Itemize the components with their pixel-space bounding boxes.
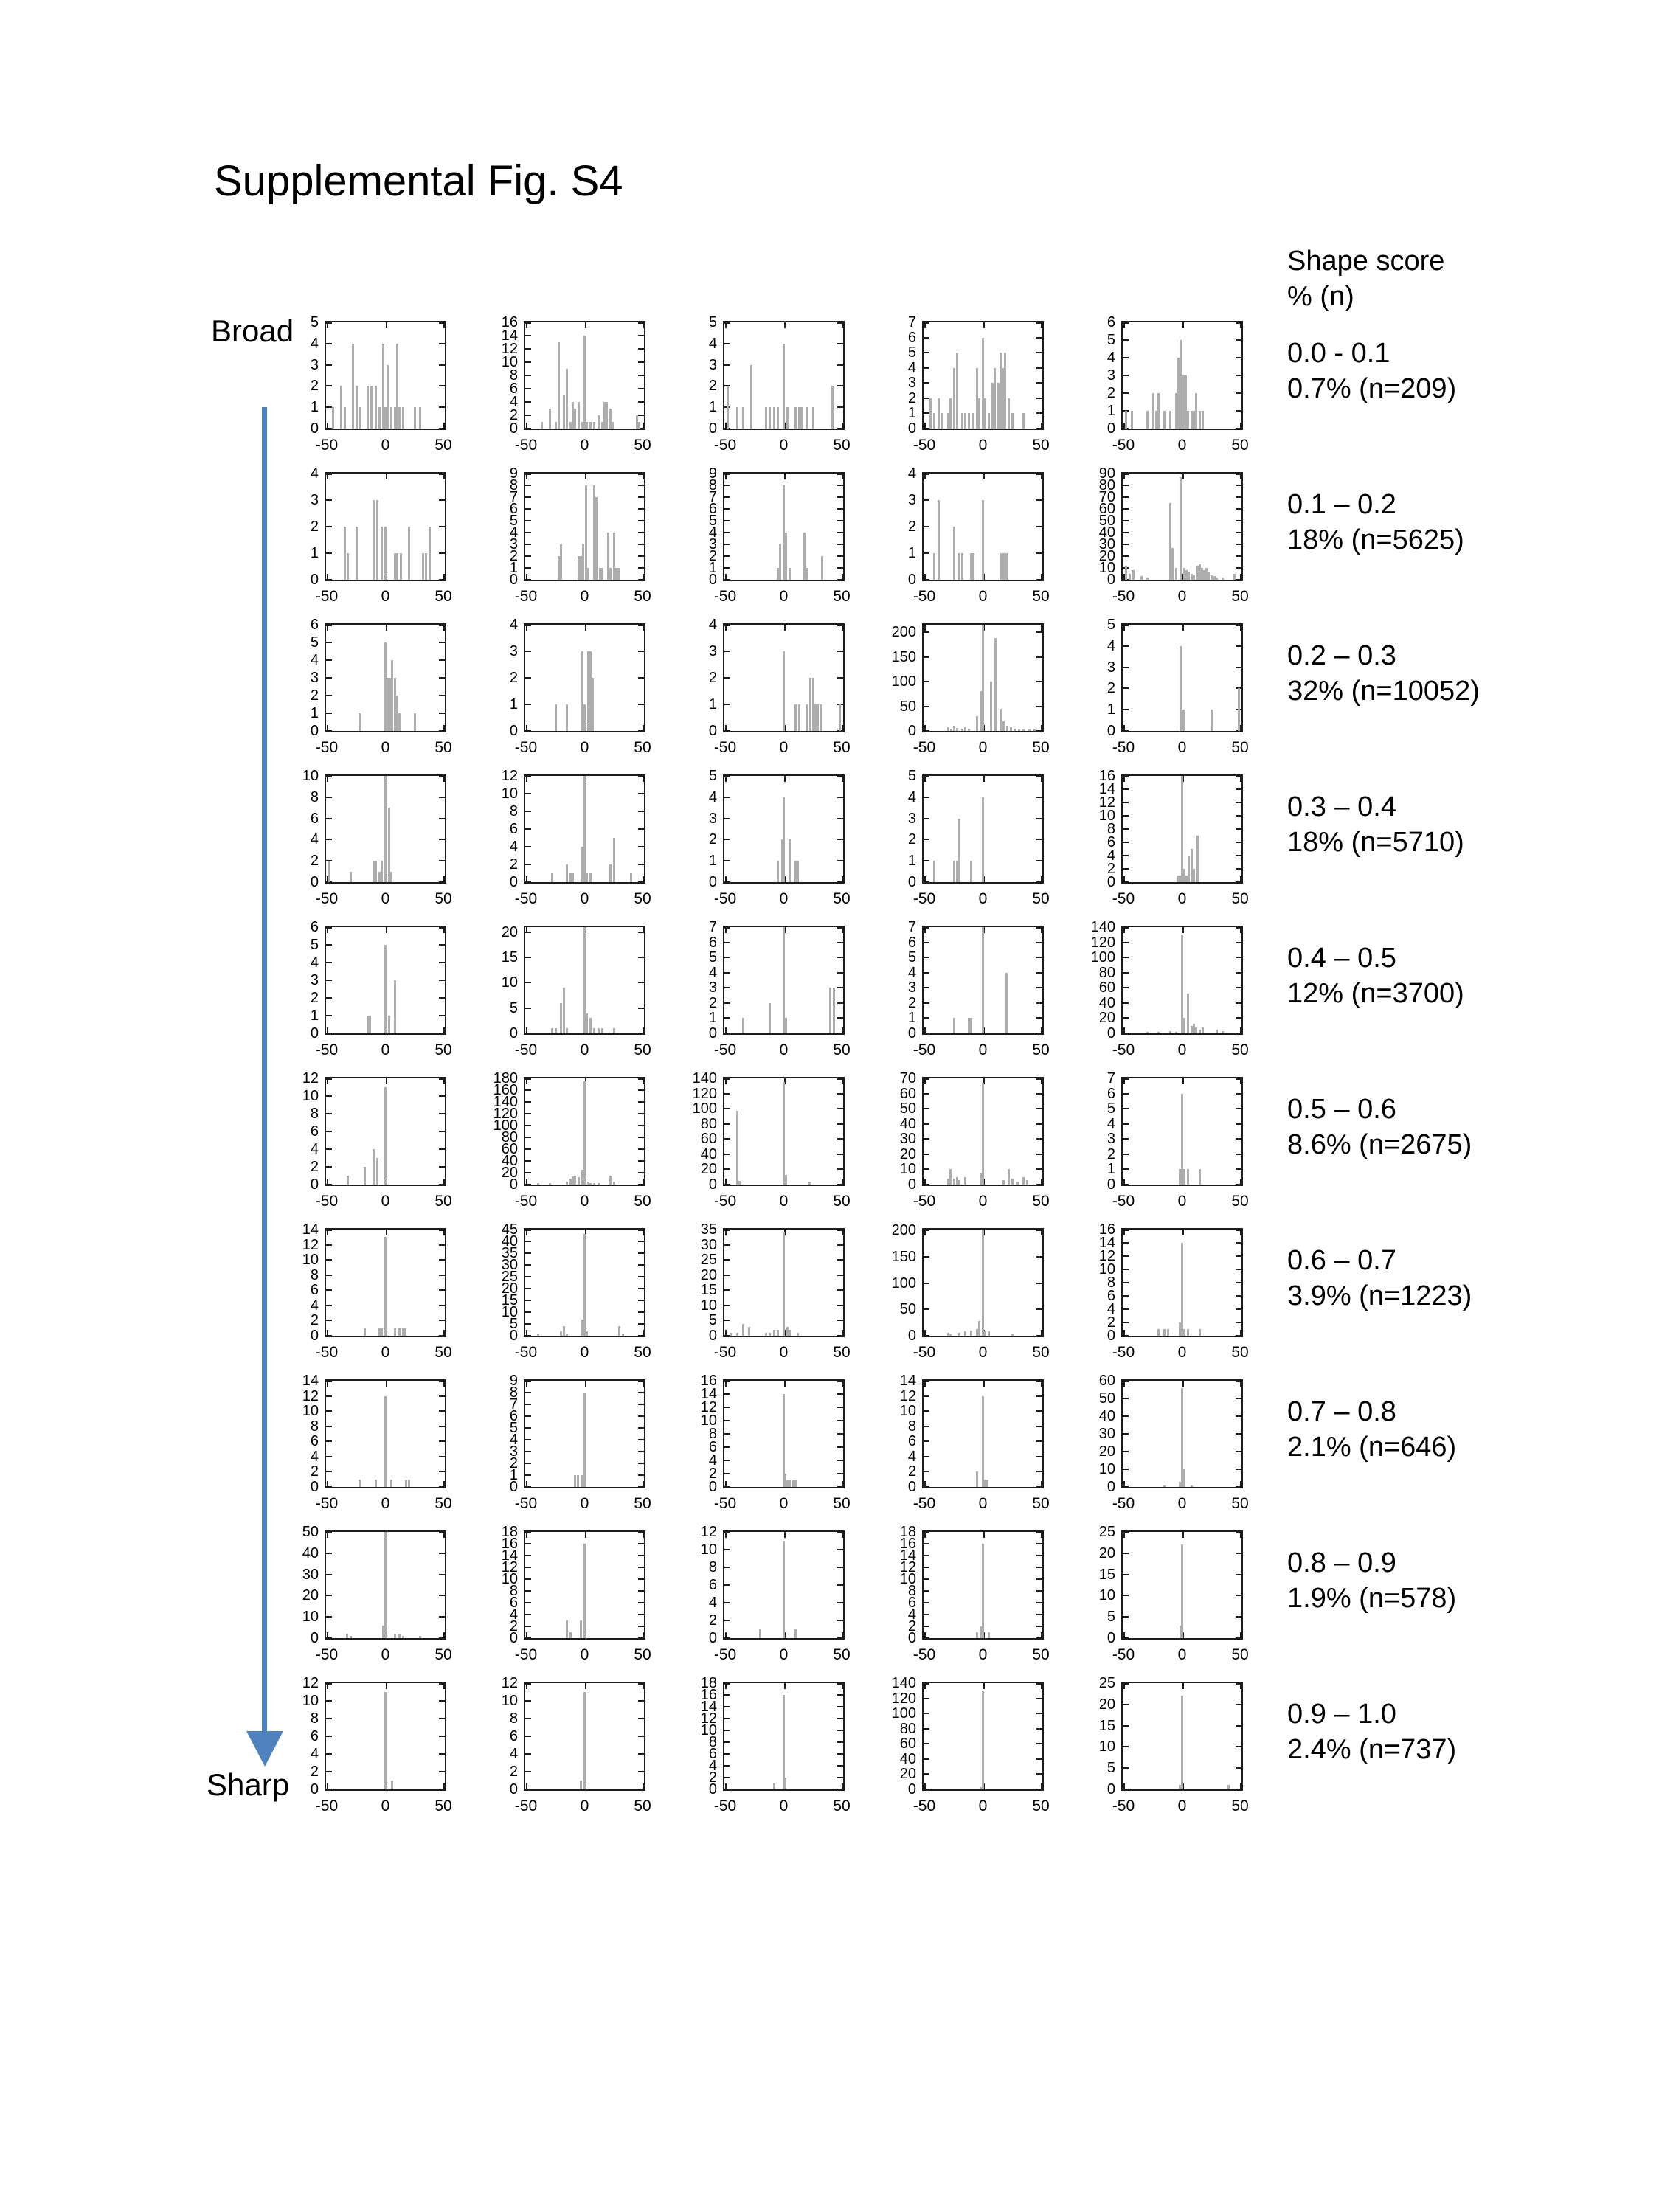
x-tick-label: 50 <box>820 890 864 909</box>
y-tick-label: 2 <box>271 686 319 705</box>
y-tick-label: 100 <box>869 672 916 691</box>
y-tick-mark <box>1123 339 1129 341</box>
y-tick-mark <box>924 1002 929 1004</box>
y-tick-mark <box>1236 667 1241 668</box>
y-tick-mark <box>1123 1469 1129 1470</box>
y-tick-label: 16 <box>1068 766 1115 786</box>
y-tick-mark <box>1036 1728 1042 1730</box>
y-tick-label: 4 <box>271 1140 319 1159</box>
y-tick-mark <box>724 818 730 819</box>
bar <box>953 726 955 731</box>
y-tick-label: 4 <box>869 788 916 807</box>
bar <box>1163 411 1166 429</box>
y-tick-mark <box>724 1694 730 1696</box>
bar <box>794 407 797 429</box>
y-tick-label: 1 <box>471 695 518 714</box>
x-tick-mark <box>643 474 644 479</box>
bar <box>376 500 378 580</box>
y-tick-mark <box>1236 802 1241 803</box>
x-tick-label: -50 <box>305 738 349 757</box>
bar <box>566 704 568 731</box>
x-tick-mark <box>526 1381 527 1387</box>
bar <box>1011 1179 1014 1185</box>
x-tick-mark <box>526 1230 527 1235</box>
bar <box>812 407 814 429</box>
y-tick-mark <box>1236 972 1241 974</box>
y-tick-mark <box>525 1700 531 1702</box>
x-tick-mark <box>924 1632 926 1638</box>
x-tick-label: 0 <box>364 1646 408 1665</box>
x-tick-label: -50 <box>902 1797 946 1816</box>
y-tick-mark <box>924 1154 929 1155</box>
y-tick-mark <box>1036 1773 1042 1775</box>
y-tick-mark <box>525 1474 531 1476</box>
shape-score-label: 0.3 – 0.418% (n=5710) <box>1287 789 1464 860</box>
y-tick-label: 14 <box>271 1371 319 1390</box>
x-tick-mark <box>585 1381 586 1387</box>
shape-score-label: 0.4 – 0.512% (n=3700) <box>1287 940 1464 1011</box>
x-tick-label: 0 <box>563 738 607 757</box>
bar <box>350 872 352 882</box>
y-tick-mark <box>439 364 445 366</box>
x-tick-mark <box>1240 1381 1241 1387</box>
y-tick-mark <box>439 1471 445 1472</box>
y-tick-label: 4 <box>471 1744 518 1764</box>
y-tick-label: 100 <box>869 1274 916 1293</box>
x-tick-mark <box>924 876 926 882</box>
y-tick-mark <box>924 1728 929 1730</box>
x-tick-mark <box>443 1230 445 1235</box>
y-tick-label: 18 <box>471 1522 518 1542</box>
bar <box>1171 548 1174 580</box>
y-tick-label: 50 <box>869 1300 916 1319</box>
x-tick-mark <box>725 574 727 580</box>
y-tick-mark <box>638 1578 644 1580</box>
y-tick-mark <box>924 1426 929 1427</box>
y-tick-mark <box>638 793 644 794</box>
y-tick-mark <box>1036 1698 1042 1699</box>
bar <box>789 1330 791 1336</box>
y-tick-mark <box>1236 1704 1241 1705</box>
y-tick-mark <box>837 1108 843 1109</box>
x-tick-mark <box>1123 876 1125 882</box>
x-tick-mark <box>643 322 644 328</box>
x-tick-mark <box>443 1078 445 1084</box>
histogram-r4-c2 <box>524 774 645 884</box>
y-tick-label: 50 <box>271 1522 319 1542</box>
bar <box>347 1176 349 1185</box>
x-tick-label: 50 <box>1218 1494 1262 1514</box>
bar <box>769 407 771 429</box>
y-tick-mark <box>1036 1590 1042 1592</box>
bar <box>956 353 958 429</box>
y-tick-mark <box>638 1736 644 1737</box>
histogram-r5-c1 <box>325 926 446 1035</box>
x-tick-mark <box>443 927 445 933</box>
histogram-r8-c1 <box>325 1379 446 1488</box>
bar <box>949 1334 952 1336</box>
histogram-r2-c4 <box>922 472 1044 581</box>
x-tick-mark <box>1123 725 1125 731</box>
bar <box>549 1183 551 1185</box>
x-tick-mark <box>443 1632 445 1638</box>
y-tick-mark <box>439 1244 445 1246</box>
y-tick-mark <box>837 1584 843 1586</box>
bar <box>783 651 785 731</box>
histogram-r2-c5 <box>1121 472 1243 581</box>
x-tick-mark <box>526 776 527 782</box>
bar <box>984 398 986 429</box>
y-tick-mark <box>439 1275 445 1276</box>
x-tick-label: 0 <box>563 436 607 455</box>
y-tick-mark <box>837 1460 843 1461</box>
y-tick-label: 6 <box>271 809 319 828</box>
x-tick-label: 0 <box>961 890 1005 909</box>
histogram-r5-c5 <box>1121 926 1243 1035</box>
x-tick-mark <box>1041 927 1042 933</box>
x-tick-label: 0 <box>1160 587 1205 606</box>
x-tick-mark <box>1123 927 1125 933</box>
x-tick-mark <box>386 927 387 933</box>
x-tick-label: 50 <box>820 436 864 455</box>
x-tick-mark <box>725 1381 727 1387</box>
y-tick-mark <box>638 864 644 865</box>
y-tick-label: 30 <box>271 1565 319 1584</box>
bar <box>346 1634 348 1638</box>
y-tick-mark <box>837 1549 843 1550</box>
y-tick-mark <box>638 544 644 545</box>
bar <box>1182 710 1185 731</box>
x-tick-label: -50 <box>504 436 548 455</box>
bar <box>566 1028 568 1033</box>
bar <box>373 500 375 580</box>
x-tick-mark <box>443 574 445 580</box>
y-tick-mark <box>924 1567 929 1568</box>
x-tick-label: -50 <box>305 1646 349 1665</box>
x-tick-label: -50 <box>1101 890 1146 909</box>
y-tick-mark <box>1123 1322 1129 1323</box>
y-tick-label: 4 <box>670 615 717 634</box>
x-tick-mark <box>983 474 985 479</box>
y-tick-label: 2 <box>670 668 717 687</box>
x-tick-label: -50 <box>902 1494 946 1514</box>
x-tick-label: -50 <box>902 587 946 606</box>
shape-score-range-label: 0.7 – 0.8 <box>1287 1394 1456 1429</box>
x-tick-mark <box>924 625 926 631</box>
y-tick-mark <box>525 982 531 983</box>
y-tick-mark <box>724 860 730 861</box>
x-tick-mark <box>725 1532 727 1538</box>
y-tick-mark <box>1036 352 1042 353</box>
bar <box>933 553 935 580</box>
bar <box>1195 1027 1197 1033</box>
x-tick-label: -50 <box>1101 1343 1146 1362</box>
y-tick-label: 3 <box>271 490 319 510</box>
y-tick-mark <box>1036 706 1042 707</box>
bar <box>1010 727 1012 731</box>
histogram-r10-c5 <box>1121 1682 1243 1791</box>
bar <box>789 839 791 882</box>
y-tick-mark <box>326 677 332 679</box>
bar <box>1193 575 1195 580</box>
y-tick-label: 15 <box>1068 1716 1115 1736</box>
bar <box>986 1480 988 1487</box>
x-tick-label: 50 <box>820 1797 864 1816</box>
y-tick-mark <box>1123 1595 1129 1596</box>
y-tick-mark <box>924 1168 929 1170</box>
bar <box>609 864 612 882</box>
bar <box>765 1333 767 1336</box>
x-tick-mark <box>327 927 328 933</box>
y-tick-mark <box>1236 1308 1241 1310</box>
y-tick-mark <box>638 567 644 569</box>
bar <box>1202 1027 1204 1033</box>
bar <box>566 1182 568 1185</box>
x-tick-label: -50 <box>703 587 747 606</box>
y-tick-mark <box>1123 1725 1129 1727</box>
x-tick-label: 0 <box>1160 436 1205 455</box>
histogram-r3-c5 <box>1121 623 1243 732</box>
y-tick-mark <box>638 1753 644 1755</box>
y-tick-label: 150 <box>869 1247 916 1266</box>
x-tick-label: -50 <box>305 1041 349 1060</box>
y-tick-mark <box>837 1706 843 1707</box>
bar <box>566 864 568 882</box>
x-tick-mark <box>1041 776 1042 782</box>
y-tick-mark <box>638 982 644 983</box>
y-tick-mark <box>326 385 332 386</box>
bar <box>1175 568 1177 580</box>
y-tick-mark <box>724 1275 730 1276</box>
y-tick-mark <box>326 962 332 963</box>
y-tick-mark <box>1123 1108 1129 1109</box>
y-tick-mark <box>924 631 929 633</box>
x-tick-label: 0 <box>563 1343 607 1362</box>
bar <box>1195 393 1197 429</box>
bar <box>773 407 775 429</box>
y-tick-mark <box>724 1706 730 1707</box>
y-tick-mark <box>1036 1256 1042 1258</box>
y-tick-mark <box>1123 687 1129 689</box>
bar <box>982 1230 984 1336</box>
y-tick-mark <box>638 1439 644 1440</box>
x-tick-mark <box>784 322 786 328</box>
y-tick-mark <box>924 987 929 988</box>
y-tick-mark <box>525 1311 531 1313</box>
x-tick-mark <box>924 574 926 580</box>
y-tick-label: 25 <box>1068 1674 1115 1693</box>
y-tick-label: 20 <box>471 923 518 942</box>
y-tick-mark <box>1236 375 1241 376</box>
bar <box>563 988 565 1033</box>
y-tick-mark <box>326 1113 332 1114</box>
x-tick-label: 0 <box>961 738 1005 757</box>
y-tick-mark <box>924 1543 929 1544</box>
bar <box>736 407 738 429</box>
y-tick-mark <box>837 567 843 569</box>
x-tick-mark <box>1041 1330 1042 1336</box>
x-tick-label: 50 <box>1019 738 1063 757</box>
y-tick-mark <box>724 1259 730 1261</box>
bar <box>391 1781 393 1789</box>
y-tick-label: 7 <box>869 918 916 937</box>
bar <box>1018 729 1020 731</box>
bar <box>328 861 330 882</box>
x-tick-mark <box>526 423 527 429</box>
y-tick-mark <box>1236 1269 1241 1270</box>
x-tick-mark <box>526 625 527 631</box>
bar <box>364 1328 366 1336</box>
x-tick-mark <box>1240 574 1241 580</box>
y-tick-mark <box>326 1595 332 1596</box>
x-tick-mark <box>327 423 328 429</box>
x-tick-mark <box>1182 474 1184 479</box>
y-tick-label: 4 <box>471 837 518 856</box>
bar <box>783 1695 785 1789</box>
bar <box>821 556 823 580</box>
x-tick-label: 0 <box>961 587 1005 606</box>
x-tick-label: 0 <box>563 1041 607 1060</box>
y-tick-mark <box>924 1440 929 1442</box>
x-tick-mark <box>327 776 328 782</box>
x-tick-mark <box>327 1230 328 1235</box>
histogram-r8-c5 <box>1121 1379 1243 1488</box>
y-tick-mark <box>1236 957 1241 958</box>
y-tick-mark <box>638 957 644 958</box>
y-tick-mark <box>1236 520 1241 521</box>
y-tick-mark <box>326 1244 332 1246</box>
y-tick-mark <box>1036 1395 1042 1397</box>
bar <box>982 500 984 580</box>
bar <box>344 527 346 580</box>
bar <box>589 422 592 429</box>
y-tick-mark <box>837 1275 843 1276</box>
bar <box>972 553 974 580</box>
x-tick-mark <box>443 1330 445 1336</box>
bar <box>961 413 963 429</box>
histogram-r4-c4 <box>922 774 1044 884</box>
y-tick-mark <box>1036 552 1042 554</box>
y-tick-mark <box>525 1753 531 1755</box>
x-tick-mark <box>725 1481 727 1487</box>
bar <box>350 1636 352 1638</box>
x-tick-label: 0 <box>563 890 607 909</box>
bar <box>1125 411 1127 429</box>
x-tick-mark <box>443 1179 445 1185</box>
y-tick-mark <box>638 828 644 830</box>
x-tick-mark <box>1182 1683 1184 1689</box>
x-tick-label: 0 <box>563 1797 607 1816</box>
bar <box>1002 1180 1005 1185</box>
y-tick-mark <box>525 544 531 545</box>
bar <box>953 1179 955 1185</box>
y-tick-mark <box>1123 868 1129 870</box>
bar <box>1167 1329 1169 1336</box>
x-tick-mark <box>443 776 445 782</box>
x-tick-mark <box>327 1330 328 1336</box>
y-tick-mark <box>724 496 730 498</box>
y-tick-mark <box>326 343 332 344</box>
y-tick-mark <box>837 520 843 521</box>
y-tick-mark <box>1123 1154 1129 1155</box>
y-tick-mark <box>924 552 929 554</box>
x-tick-label: 50 <box>1218 1646 1262 1665</box>
x-tick-mark <box>443 876 445 882</box>
bar <box>1006 726 1008 731</box>
y-tick-mark <box>924 367 929 369</box>
x-tick-mark <box>924 1330 926 1336</box>
x-tick-mark <box>924 1783 926 1789</box>
x-tick-label: 0 <box>1160 1797 1205 1816</box>
bar <box>566 1620 568 1638</box>
y-tick-mark <box>326 1275 332 1276</box>
y-tick-mark <box>1236 1415 1241 1417</box>
x-tick-mark <box>1240 474 1241 479</box>
y-tick-mark <box>525 532 531 533</box>
y-tick-mark <box>724 508 730 510</box>
x-tick-mark <box>842 1330 843 1336</box>
bar <box>953 368 955 429</box>
bar <box>593 1028 595 1033</box>
y-tick-mark <box>924 706 929 707</box>
bar <box>347 553 349 580</box>
x-tick-label: -50 <box>1101 1192 1146 1211</box>
bar <box>1180 477 1182 580</box>
bar <box>829 988 831 1033</box>
y-tick-mark <box>439 499 445 501</box>
bar <box>414 713 416 731</box>
y-tick-mark <box>1123 1093 1129 1095</box>
bar <box>958 819 960 882</box>
y-tick-mark <box>439 1616 445 1618</box>
y-tick-label: 3 <box>271 356 319 375</box>
x-tick-mark <box>725 776 727 782</box>
bar <box>384 776 387 882</box>
y-tick-mark <box>326 797 332 798</box>
x-tick-mark <box>842 876 843 882</box>
bar <box>344 407 346 429</box>
x-tick-label: -50 <box>1101 738 1146 757</box>
y-tick-mark <box>924 1614 929 1615</box>
y-tick-label: 40 <box>1068 1407 1115 1426</box>
x-tick-mark <box>526 474 527 479</box>
y-tick-mark <box>439 695 445 696</box>
y-tick-label: 1 <box>271 544 319 563</box>
y-tick-mark <box>1236 1295 1241 1297</box>
histogram-r2-c2 <box>524 472 645 581</box>
y-tick-label: 5 <box>1068 330 1115 350</box>
y-tick-mark <box>439 1131 445 1132</box>
y-tick-mark <box>1036 1002 1042 1004</box>
bar <box>783 1232 785 1336</box>
bar <box>359 407 361 429</box>
y-tick-label: 30 <box>1068 1424 1115 1443</box>
bar <box>1181 1696 1183 1789</box>
bar <box>933 413 935 429</box>
bar <box>1008 1169 1010 1185</box>
y-tick-mark <box>1036 1543 1042 1544</box>
y-tick-mark <box>638 1771 644 1772</box>
bar <box>589 1018 592 1033</box>
y-tick-mark <box>1123 1767 1129 1769</box>
y-tick-label: 1 <box>1068 700 1115 719</box>
y-tick-mark <box>724 1753 730 1755</box>
x-tick-mark <box>526 725 527 731</box>
x-tick-label: -50 <box>902 890 946 909</box>
y-tick-mark <box>638 1137 644 1138</box>
y-tick-mark <box>525 1463 531 1464</box>
y-tick-label: 8 <box>271 1709 319 1728</box>
